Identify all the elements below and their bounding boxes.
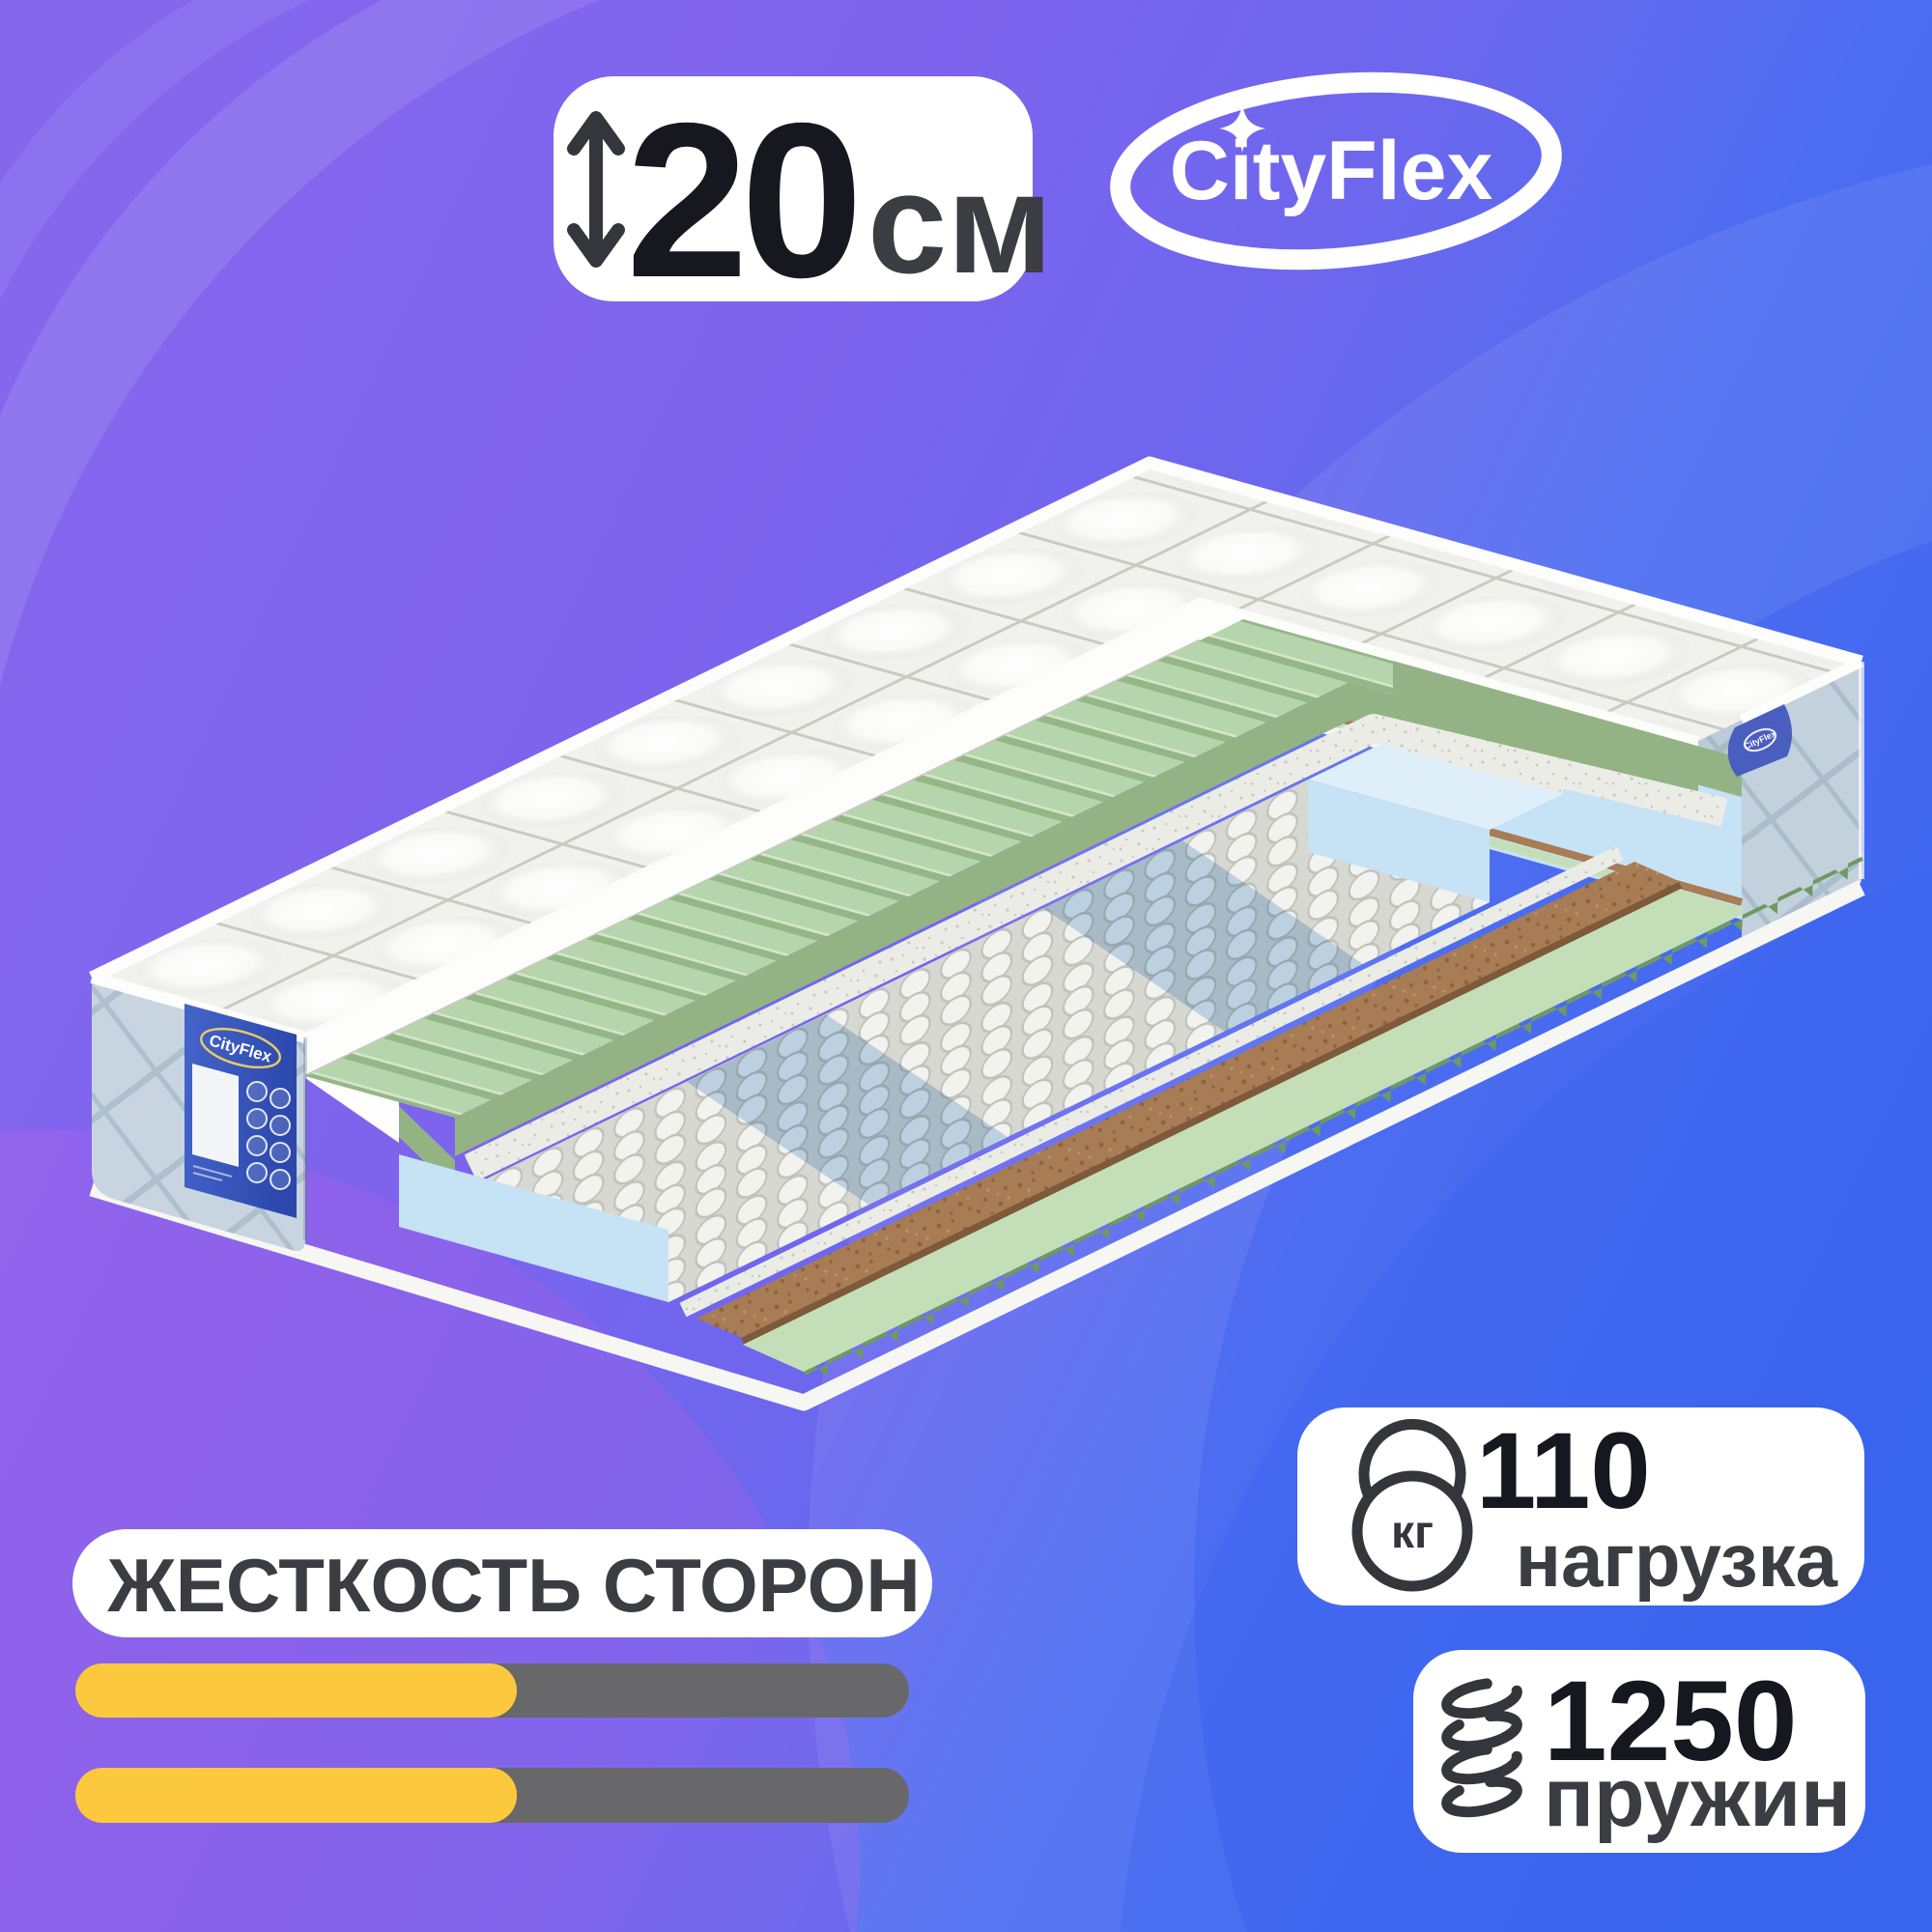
mattress-side-label: CityFlex	[185, 1004, 297, 1218]
height-unit: см	[867, 144, 1053, 303]
height-badge: 20 см	[554, 76, 1053, 324]
load-spec-badge: кг 110 нагрузка	[1297, 1407, 1864, 1605]
label-care-panel	[192, 1064, 239, 1167]
firmness-bar-fill	[75, 1663, 517, 1718]
firmness-block: ЖЕСТКОСТЬ СТОРОН	[72, 1529, 932, 1823]
kettlebell-unit: кг	[1391, 1507, 1434, 1558]
firmness-bar	[75, 1768, 909, 1823]
height-value: 20	[626, 78, 856, 324]
springs-spec-badge: 1250 пружин	[1413, 1650, 1865, 1853]
load-value: 110	[1476, 1410, 1651, 1531]
load-label: нагрузка	[1516, 1518, 1838, 1603]
product-image-root: CityFlex CityFlex	[0, 0, 1932, 1932]
springs-label: пружин	[1544, 1751, 1851, 1844]
brand-logo-text: CityFlex	[1170, 125, 1493, 217]
firmness-bar	[75, 1663, 909, 1718]
firmness-bar-fill	[75, 1768, 517, 1823]
firmness-title: ЖЕСТКОСТЬ СТОРОН	[106, 1543, 920, 1628]
